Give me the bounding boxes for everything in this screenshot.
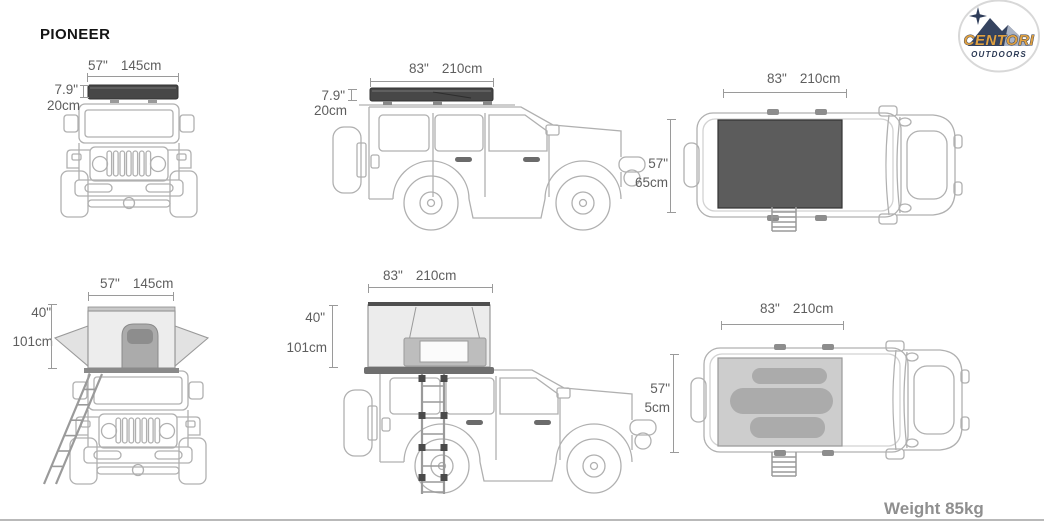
front-closed-width-cm: 145cm [121,58,162,73]
front-closed-height-in: 7.9" [36,82,78,97]
view-top-closed: 83" 210cm 57" 65cm [633,55,1013,240]
side-open-length-cm: 210cm [416,268,457,283]
top-open-drawing [633,293,1013,493]
width-dim-line [670,119,671,213]
view-top-open: 83" 210cm 57" 5cm [633,293,1013,493]
tent-closed-top-panel [718,120,842,208]
top-open-width-cm: 5cm [634,400,670,415]
front-open-height-in: 40" [21,305,51,320]
width-dim-line [87,76,179,77]
top-closed-width-in: 57" [638,156,668,171]
side-closed-height-cm: 20cm [295,103,347,118]
view-side-closed: 83" 210cm 7.9" 20cm [283,55,653,240]
height-dim-line [332,305,333,368]
side-open-height-in: 40" [295,310,325,325]
mattress-2 [730,388,833,414]
tent-ladder [419,374,448,494]
mattress-3 [750,417,825,438]
front-open-width-cm: 145cm [133,276,174,291]
view-front-open: 57" 145cm 40" 101cm [8,272,258,497]
tent-window [420,341,468,362]
tent-open-shell [55,307,208,373]
side-open-length-in: 83" [383,268,403,283]
side-open-height-cm: 101cm [283,340,327,355]
logo-brand-text: CENTORI [964,32,1035,49]
length-dim-line [721,324,844,325]
view-front-closed: 57" 145cm 7.9" 20cm [20,55,255,235]
length-dim-line [723,92,847,93]
top-open-length-in: 83" [760,301,780,316]
front-closed-height-cm: 20cm [28,98,80,113]
top-closed-width-cm: 65cm [633,175,668,190]
height-dim-line [51,304,52,369]
tent-open-shell [364,302,494,374]
height-dim-line [351,89,352,101]
top-closed-length-in: 83" [767,71,787,86]
width-dim-line [673,354,674,453]
width-dim-line [88,295,174,296]
front-closed-width-in: 57" [88,58,108,73]
tent-window [127,329,153,344]
side-closed-drawing [283,55,653,240]
weight-label: Weight 85kg [884,499,984,519]
spec-sheet: PIONEER CENTORI OUTDOORS 57" 145cm [0,0,1044,525]
product-title: PIONEER [40,26,110,43]
height-dim-line [83,85,84,98]
side-closed-height-in: 7.9" [303,88,345,103]
front-open-height-cm: 101cm [9,334,53,349]
top-open-width-in: 57" [640,381,670,396]
mattress-1 [752,368,827,384]
side-closed-length-in: 83" [409,61,429,76]
length-dim-line [370,81,494,82]
front-open-width-in: 57" [100,276,120,291]
side-open-drawing [276,262,661,507]
view-side-open: 83" 210cm 40" 101cm [276,262,661,507]
length-dim-line [368,287,493,288]
bottom-divider [0,519,1044,521]
top-open-length-cm: 210cm [793,301,834,316]
tent-closed-shell [88,85,178,103]
top-closed-length-cm: 210cm [800,71,841,86]
tent-closed-shell [359,88,515,105]
jeep-front-view [70,371,206,484]
side-closed-length-cm: 210cm [442,61,483,76]
jeep-side-view [333,107,645,230]
jeep-side-view [344,370,656,493]
jeep-front-view [61,104,197,217]
